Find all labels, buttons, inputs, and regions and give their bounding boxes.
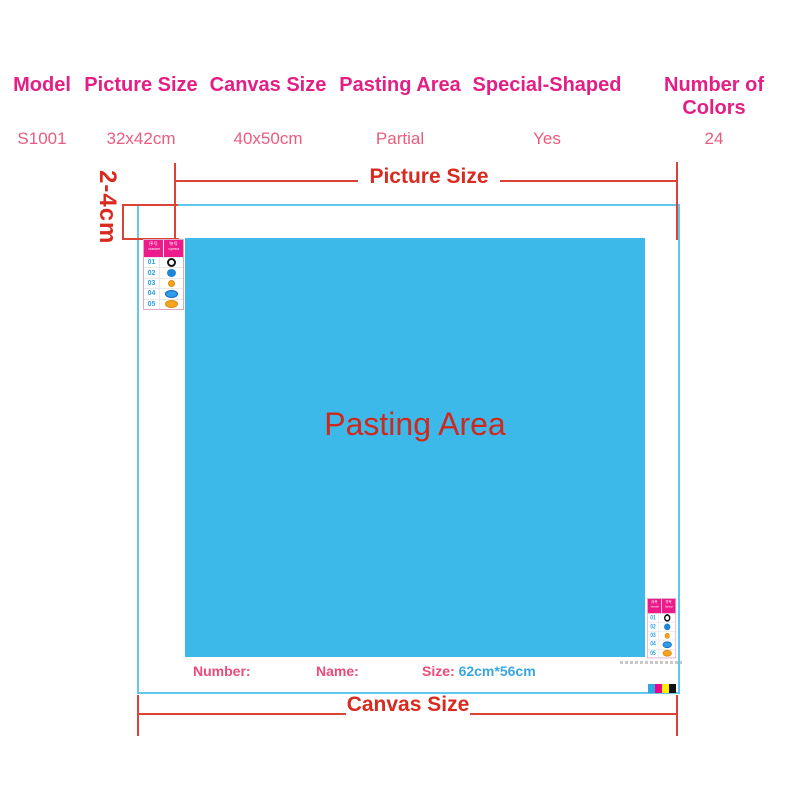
canvas-size-left-line [137, 713, 346, 715]
orange-oval-symbol-icon [165, 300, 178, 308]
size-value: 62cm*56cm [459, 663, 536, 679]
product-size-infographic: Model Picture Size Canvas Size Pasting A… [0, 0, 800, 800]
legend-num-01: 01 [648, 615, 659, 621]
blue-dot-symbol-icon [167, 269, 176, 277]
spec-value-model: S1001 [2, 129, 82, 149]
orange-oval-symbol-icon [663, 650, 672, 657]
legend-num-05: 05 [648, 651, 659, 657]
spec-header-canvas-size: Canvas Size [200, 74, 336, 120]
legend-header-symbol: 符号 Symbol [164, 240, 183, 257]
spec-table: Model Picture Size Canvas Size Pasting A… [2, 74, 798, 149]
legend-num-05: 05 [144, 301, 159, 308]
size-line: Size: 62cm*56cm [422, 663, 536, 679]
picture-size-right-tick [676, 162, 678, 240]
blue-dot-symbol-icon [664, 624, 670, 631]
legend-num-04: 04 [144, 290, 159, 297]
legend-row-03: 03 [144, 278, 183, 288]
legend-row-04: 04 [648, 640, 676, 649]
legend-row-02: 02 [144, 267, 183, 277]
legend-row-01: 01 [144, 257, 183, 267]
spec-value-special-shaped: Yes [464, 129, 630, 149]
cmyk-print-marks [648, 684, 676, 693]
margin-bracket-vertical-line [122, 204, 124, 240]
magenta-print-mark [655, 684, 662, 693]
legend-row-01: 01 [648, 613, 676, 622]
spec-value-number-of-colors: 24 [630, 129, 798, 149]
legend-num-04: 04 [648, 642, 659, 648]
legend-header-number-en: Number [651, 606, 658, 609]
black-ring-symbol-icon [664, 614, 670, 622]
spec-header-number-of-colors: Number of Colors [630, 74, 798, 120]
spec-value-pasting-area: Partial [336, 129, 464, 149]
spec-header-model: Model [2, 74, 82, 120]
legend-num-02: 02 [648, 624, 659, 630]
margin-bracket-top-line [122, 204, 178, 206]
legend-row-04: 04 [144, 288, 183, 298]
margin-label: 2-4cm [93, 163, 121, 251]
pasting-area-rect [185, 238, 645, 657]
picture-size-label: Picture Size [358, 165, 500, 189]
blue-oval-symbol-icon [165, 290, 178, 298]
legend-header: 序号 Number 符号 Symbol [648, 599, 676, 613]
legend-header: 序号 Number 符号 Symbol [144, 240, 183, 257]
size-label: Size: [422, 663, 455, 679]
yellow-print-mark [662, 684, 669, 693]
name-label: Name: [316, 663, 359, 679]
canvas-size-left-tick [137, 695, 139, 736]
legend-num-01: 01 [144, 259, 159, 266]
legend-num-03: 03 [648, 633, 659, 639]
legend-header-number: 序号 Number [144, 240, 163, 257]
legend-header-symbol-en: Symbol [665, 606, 672, 609]
legend-row-05: 05 [144, 299, 183, 309]
color-legend-bottom-right: 序号 Number 符号 Symbol 01 02 03 04 05 [647, 598, 676, 658]
black-ring-symbol-icon [167, 258, 176, 267]
legend-row-05: 05 [648, 649, 676, 658]
spec-value-picture-size: 32x42cm [82, 129, 200, 149]
cyan-print-mark [648, 684, 655, 693]
picture-size-left-tick [174, 163, 176, 239]
legend-header-symbol-cn: 符号 [664, 601, 673, 605]
picture-size-left-line [174, 180, 358, 182]
legend-num-02: 02 [144, 270, 159, 277]
color-legend-top-left: 序号 Number 符号 Symbol 01 02 03 04 05 [143, 239, 184, 310]
spec-header-picture-size: Picture Size [82, 74, 200, 120]
legend-header-symbol: 符号 Symbol [662, 599, 675, 613]
legend-header-number-cn: 序号 [147, 242, 160, 246]
legend-row-03: 03 [648, 631, 676, 640]
spec-header-pasting-area: Pasting Area [336, 74, 464, 120]
spec-header-special-shaped: Special-Shaped [464, 74, 630, 120]
number-label: Number: [193, 663, 251, 679]
black-print-mark [669, 684, 676, 693]
canvas-size-label: Canvas Size [346, 693, 470, 717]
pasting-area-label: Pasting Area [185, 406, 645, 443]
legend-row-02: 02 [648, 622, 676, 631]
orange-dot-symbol-icon [665, 633, 670, 639]
canvas-size-right-tick [676, 695, 678, 736]
blue-oval-symbol-icon [663, 641, 672, 648]
legend-header-number: 序号 Number [648, 599, 661, 613]
spec-value-canvas-size: 40x50cm [200, 129, 336, 149]
picture-size-right-line [500, 180, 678, 182]
spec-table-header-row: Model Picture Size Canvas Size Pasting A… [2, 74, 798, 120]
legend-header-symbol-cn: 符号 [167, 242, 180, 246]
legend-header-number-cn: 序号 [650, 601, 659, 605]
legend-num-03: 03 [144, 280, 159, 287]
legend-header-symbol-en: Symbol [168, 248, 178, 251]
fine-print-watermark [620, 661, 682, 664]
legend-header-number-en: Number [148, 248, 158, 251]
orange-dot-symbol-icon [168, 280, 175, 287]
canvas-size-right-line [470, 713, 678, 715]
spec-table-value-row: S1001 32x42cm 40x50cm Partial Yes 24 [2, 129, 798, 149]
